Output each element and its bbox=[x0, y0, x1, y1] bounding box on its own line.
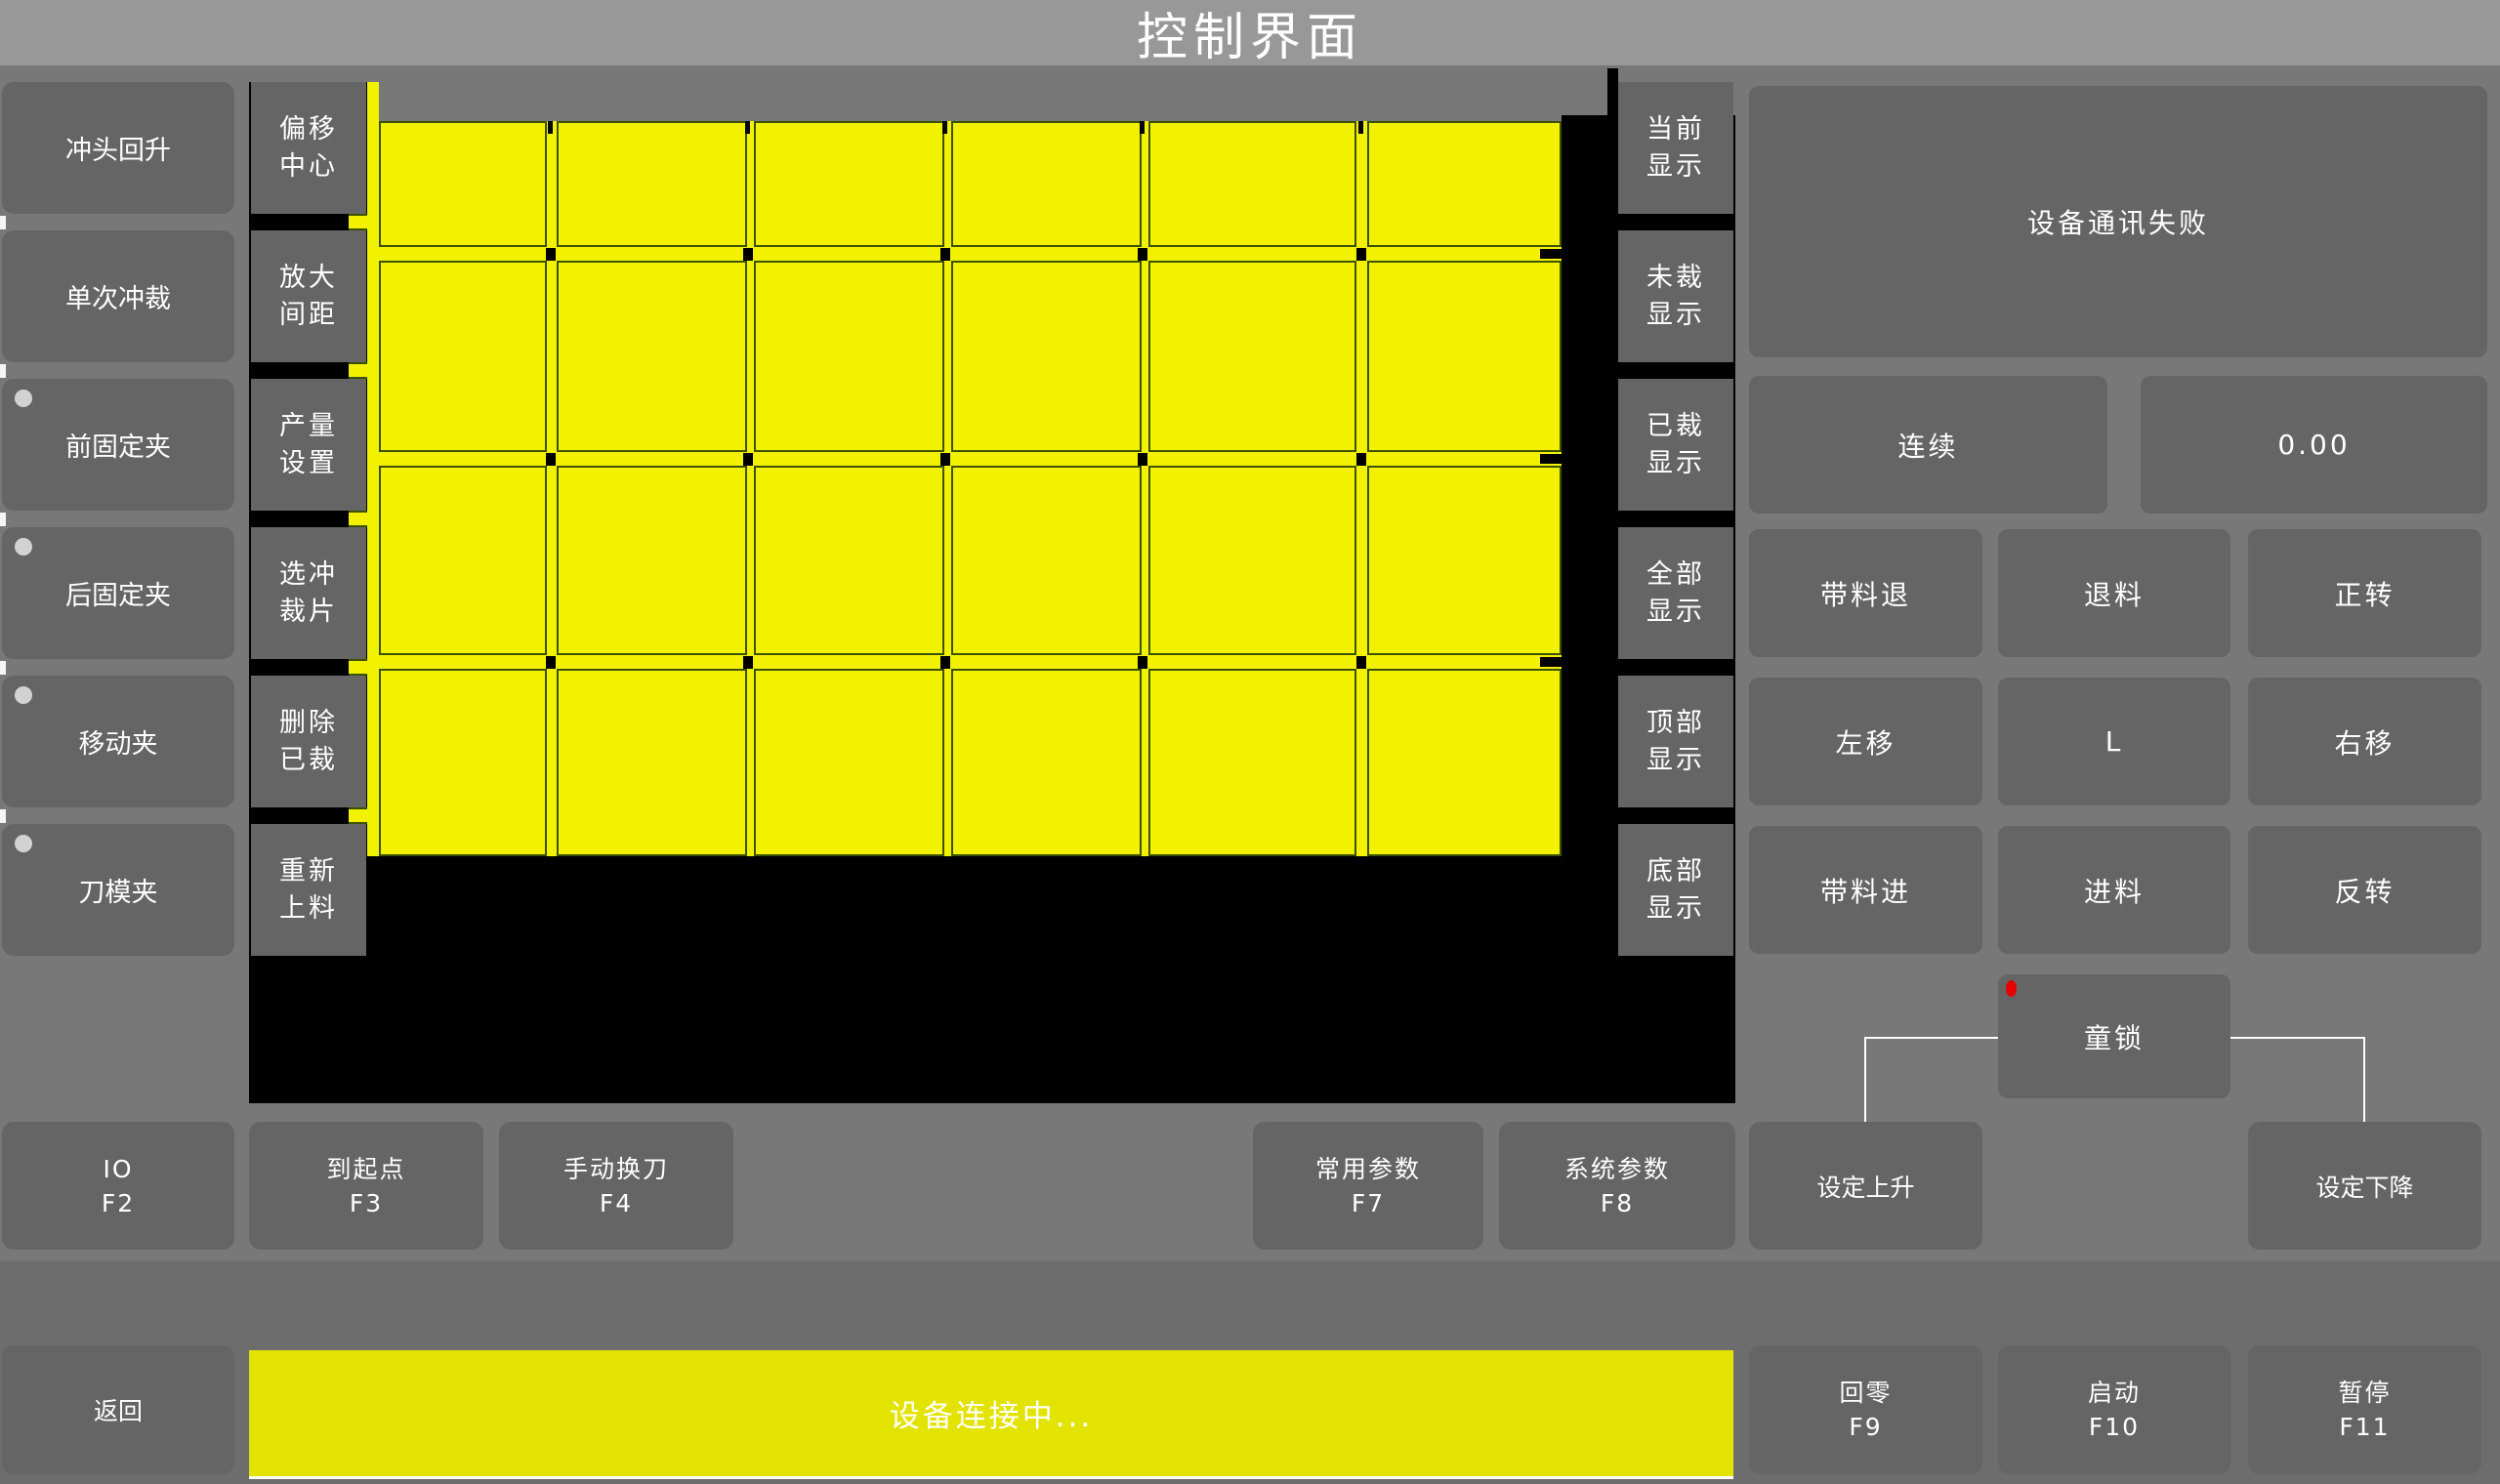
button-label: 设置 bbox=[279, 445, 338, 482]
button-label: 显示 bbox=[1646, 297, 1705, 334]
edge-tick bbox=[0, 661, 6, 675]
button-label: 退料 bbox=[2084, 574, 2145, 613]
button-label: 全部 bbox=[1646, 556, 1705, 594]
grid-mark bbox=[1356, 656, 1366, 669]
button-label: 设定上升 bbox=[1816, 1169, 1914, 1204]
button-label: 左移 bbox=[1835, 722, 1896, 762]
tool-gap-notch bbox=[349, 511, 367, 527]
button-show-bottom[interactable]: 底部显示 bbox=[1618, 824, 1733, 956]
cut-piece-r1c1[interactable] bbox=[379, 121, 547, 247]
button-label: 暂停 bbox=[2338, 1376, 2391, 1410]
edge-tick bbox=[0, 513, 6, 526]
cut-piece-r4c2[interactable] bbox=[557, 669, 747, 856]
connection-status-text: 设备连接中... bbox=[890, 1391, 1094, 1435]
button-show-all[interactable]: 全部显示 bbox=[1618, 527, 1733, 659]
child-lock-alert-dot bbox=[2006, 980, 2017, 997]
grid-mark bbox=[1138, 656, 1147, 669]
button-label: 冲头回升 bbox=[65, 129, 171, 167]
button-eject-material[interactable]: 退料 bbox=[1998, 529, 2230, 657]
button-label: IO bbox=[103, 1152, 133, 1186]
button-select-pieces[interactable]: 选冲裁片 bbox=[251, 527, 366, 659]
button-key: F10 bbox=[2089, 1410, 2140, 1444]
button-label: 连续 bbox=[1897, 426, 1958, 465]
button-label: 显示 bbox=[1646, 445, 1705, 482]
button-label: 移动夹 bbox=[79, 722, 158, 761]
button-feed-material[interactable]: 进料 bbox=[1998, 826, 2230, 954]
button-label: 右移 bbox=[2334, 722, 2395, 762]
status-indicator bbox=[15, 538, 32, 556]
status-message: 设备通讯失败 bbox=[2027, 202, 2209, 241]
button-label: 放大 bbox=[279, 260, 338, 297]
button-label: 手动换刀 bbox=[563, 1152, 669, 1186]
button-label: 顶部 bbox=[1646, 705, 1705, 742]
button-label: 底部 bbox=[1646, 853, 1705, 890]
cut-piece-r1c3[interactable] bbox=[754, 121, 944, 247]
button-punch-raise[interactable]: 冲头回升 bbox=[2, 82, 234, 214]
button-pause-f11[interactable]: 暂停F11 bbox=[2248, 1345, 2481, 1474]
grid-mark bbox=[745, 121, 750, 134]
button-reverse-rotate[interactable]: 反转 bbox=[2248, 826, 2481, 954]
grid-mark bbox=[1540, 454, 1562, 464]
button-delete-cut[interactable]: 删除已裁 bbox=[251, 676, 366, 807]
button-set-fall[interactable]: 设定下降 bbox=[2248, 1122, 2481, 1250]
button-label: L bbox=[2105, 725, 2124, 758]
button-to-origin-f3[interactable]: 到起点F3 bbox=[249, 1122, 483, 1250]
button-label: 当前 bbox=[1646, 111, 1705, 148]
cut-piece-r2c3[interactable] bbox=[754, 261, 944, 452]
button-label: 刀模夹 bbox=[79, 871, 158, 909]
button-label: 未裁 bbox=[1646, 260, 1705, 297]
button-key: F4 bbox=[600, 1186, 633, 1220]
button-strip-retreat[interactable]: 带料退 bbox=[1749, 529, 1982, 657]
tool-gap-notch bbox=[349, 807, 367, 824]
cut-piece-r3c5[interactable] bbox=[1148, 466, 1356, 655]
bracket-line-right bbox=[2363, 1037, 2365, 1122]
button-label: 回零 bbox=[1839, 1376, 1892, 1410]
button-enlarge-spacing[interactable]: 放大间距 bbox=[251, 230, 366, 362]
button-label: 间距 bbox=[279, 297, 338, 334]
button-label: 显示 bbox=[1646, 742, 1705, 779]
grid-mark bbox=[942, 121, 947, 134]
button-label: 显示 bbox=[1646, 890, 1705, 927]
cut-piece-r2c2[interactable] bbox=[557, 261, 747, 452]
button-label: 进料 bbox=[2084, 871, 2145, 910]
button-label: 中心 bbox=[279, 148, 338, 185]
grid-mark bbox=[1356, 248, 1366, 261]
button-home-f9[interactable]: 回零F9 bbox=[1749, 1345, 1982, 1474]
button-label: 单次冲裁 bbox=[65, 277, 171, 315]
grid-mark bbox=[1358, 121, 1363, 134]
button-common-params-f7[interactable]: 常用参数F7 bbox=[1253, 1122, 1483, 1250]
connection-status-bar: 设备连接中... bbox=[249, 1350, 1733, 1476]
cut-piece-r4c3[interactable] bbox=[754, 669, 944, 856]
button-label: 产量 bbox=[279, 408, 338, 445]
status-indicator bbox=[15, 390, 32, 407]
status-indicator bbox=[15, 835, 32, 852]
button-start-f10[interactable]: 启动F10 bbox=[1998, 1345, 2230, 1474]
button-label: 裁片 bbox=[279, 594, 338, 631]
button-label: 带料退 bbox=[1820, 574, 1911, 613]
button-die-clamp[interactable]: 刀模夹 bbox=[2, 824, 234, 956]
button-moving-clamp[interactable]: 移动夹 bbox=[2, 676, 234, 807]
button-l[interactable]: L bbox=[1998, 678, 2230, 805]
cut-piece-r2c5[interactable] bbox=[1148, 261, 1356, 452]
button-label: 偏移 bbox=[279, 111, 338, 148]
grid-mark bbox=[1138, 453, 1147, 466]
status-indicator bbox=[15, 686, 32, 704]
status-message-box: 设备通讯失败 bbox=[1749, 86, 2487, 357]
grid-mark bbox=[1140, 121, 1145, 134]
button-label: 后固定夹 bbox=[65, 574, 171, 612]
cut-piece-r1c6[interactable] bbox=[1367, 121, 1562, 247]
cut-piece-r3c1[interactable] bbox=[379, 466, 547, 655]
edge-tick bbox=[0, 809, 6, 823]
grid-mark bbox=[743, 656, 753, 669]
cut-piece-r4c4[interactable] bbox=[951, 669, 1142, 856]
button-label: 显示 bbox=[1646, 594, 1705, 631]
button-key: F2 bbox=[102, 1186, 135, 1220]
cut-piece-r3c3[interactable] bbox=[754, 466, 944, 655]
cut-piece-r4c5[interactable] bbox=[1148, 669, 1356, 856]
tool-gap-notch bbox=[349, 362, 367, 379]
button-yield-settings[interactable]: 产量设置 bbox=[251, 379, 366, 511]
tool-gap-notch bbox=[349, 214, 367, 230]
grid-mark bbox=[548, 121, 553, 134]
button-show-cut[interactable]: 已裁显示 bbox=[1618, 379, 1733, 511]
button-forward-rotate[interactable]: 正转 bbox=[2248, 529, 2481, 657]
grid-mark bbox=[1540, 249, 1562, 259]
grid-mark bbox=[743, 453, 753, 466]
grid-mark bbox=[546, 248, 556, 261]
button-key: F3 bbox=[350, 1186, 383, 1220]
cut-piece-r1c2[interactable] bbox=[557, 121, 747, 247]
cut-piece-r1c5[interactable] bbox=[1148, 121, 1356, 247]
grid-mark bbox=[1540, 657, 1562, 667]
button-label: 系统参数 bbox=[1564, 1152, 1670, 1186]
button-label: 已裁 bbox=[1646, 408, 1705, 445]
cut-piece-r2c1[interactable] bbox=[379, 261, 547, 452]
button-rear-fixed-clamp[interactable]: 后固定夹 bbox=[2, 527, 234, 659]
button-child-lock[interactable]: 童锁 bbox=[1998, 974, 2230, 1098]
button-manual-tool-change-f4[interactable]: 手动换刀F4 bbox=[499, 1122, 733, 1250]
button-key: F8 bbox=[1601, 1186, 1634, 1220]
grid-mark bbox=[940, 656, 950, 669]
button-system-params-f8[interactable]: 系统参数F8 bbox=[1499, 1122, 1735, 1250]
button-show-top[interactable]: 顶部显示 bbox=[1618, 676, 1733, 807]
button-single-punch[interactable]: 单次冲裁 bbox=[2, 230, 234, 362]
statusbar-underline bbox=[249, 1476, 1733, 1479]
cut-piece-r3c2[interactable] bbox=[557, 466, 747, 655]
button-label: 童锁 bbox=[2084, 1017, 2145, 1056]
button-reload-material[interactable]: 重新上料 bbox=[251, 824, 366, 956]
button-label: 到起点 bbox=[326, 1152, 405, 1186]
cut-piece-r3c6[interactable] bbox=[1367, 466, 1562, 655]
grid-mark bbox=[546, 453, 556, 466]
value-display: 0.00 bbox=[2141, 376, 2487, 514]
button-label: 删除 bbox=[279, 705, 338, 742]
cut-piece-r4c1[interactable] bbox=[379, 669, 547, 856]
button-show-uncut[interactable]: 未裁显示 bbox=[1618, 230, 1733, 362]
button-label: 前固定夹 bbox=[65, 426, 171, 464]
cut-piece-r4c6[interactable] bbox=[1367, 669, 1562, 856]
button-io-f2[interactable]: IOF2 bbox=[2, 1122, 234, 1250]
button-label: 上料 bbox=[279, 890, 338, 927]
grid-mark bbox=[1138, 248, 1147, 261]
grid-mark bbox=[940, 453, 950, 466]
button-key: F7 bbox=[1352, 1186, 1385, 1220]
button-label: 常用参数 bbox=[1315, 1152, 1421, 1186]
button-label: 反转 bbox=[2334, 871, 2395, 910]
grid-mark bbox=[1356, 453, 1366, 466]
button-label: 重新 bbox=[279, 853, 338, 890]
button-label: 带料进 bbox=[1820, 871, 1911, 910]
button-label: 返回 bbox=[94, 1392, 143, 1427]
cut-piece-r2c6[interactable] bbox=[1367, 261, 1562, 452]
button-back[interactable]: 返回 bbox=[2, 1345, 234, 1474]
button-label: 设定下降 bbox=[2315, 1169, 2413, 1204]
button-label: 启动 bbox=[2088, 1376, 2141, 1410]
button-front-fixed-clamp[interactable]: 前固定夹 bbox=[2, 379, 234, 511]
button-strip-advance[interactable]: 带料进 bbox=[1749, 826, 1982, 954]
cut-piece-r2c4[interactable] bbox=[951, 261, 1142, 452]
button-offset-center[interactable]: 偏移中心 bbox=[251, 82, 366, 214]
value-text: 0.00 bbox=[2277, 429, 2350, 461]
bracket-line-left bbox=[1864, 1037, 1866, 1122]
grid-mark bbox=[743, 248, 753, 261]
button-key: F9 bbox=[1849, 1410, 1882, 1444]
button-key: F11 bbox=[2339, 1410, 2390, 1444]
cut-piece-r3c4[interactable] bbox=[951, 466, 1142, 655]
cut-piece-r1c4[interactable] bbox=[951, 121, 1142, 247]
mode-button-continuous[interactable]: 连续 bbox=[1749, 376, 2107, 514]
button-set-rise[interactable]: 设定上升 bbox=[1749, 1122, 1982, 1250]
grid-mark bbox=[546, 656, 556, 669]
edge-tick bbox=[0, 216, 6, 229]
button-move-left[interactable]: 左移 bbox=[1749, 678, 1982, 805]
grid-mark bbox=[940, 248, 950, 261]
tool-gap-notch bbox=[349, 659, 367, 676]
button-label: 显示 bbox=[1646, 148, 1705, 185]
button-label: 选冲 bbox=[279, 556, 338, 594]
button-label: 正转 bbox=[2334, 574, 2395, 613]
button-label: 已裁 bbox=[279, 742, 338, 779]
button-show-current[interactable]: 当前显示 bbox=[1618, 82, 1733, 214]
edge-tick bbox=[0, 364, 6, 378]
button-move-right[interactable]: 右移 bbox=[2248, 678, 2481, 805]
